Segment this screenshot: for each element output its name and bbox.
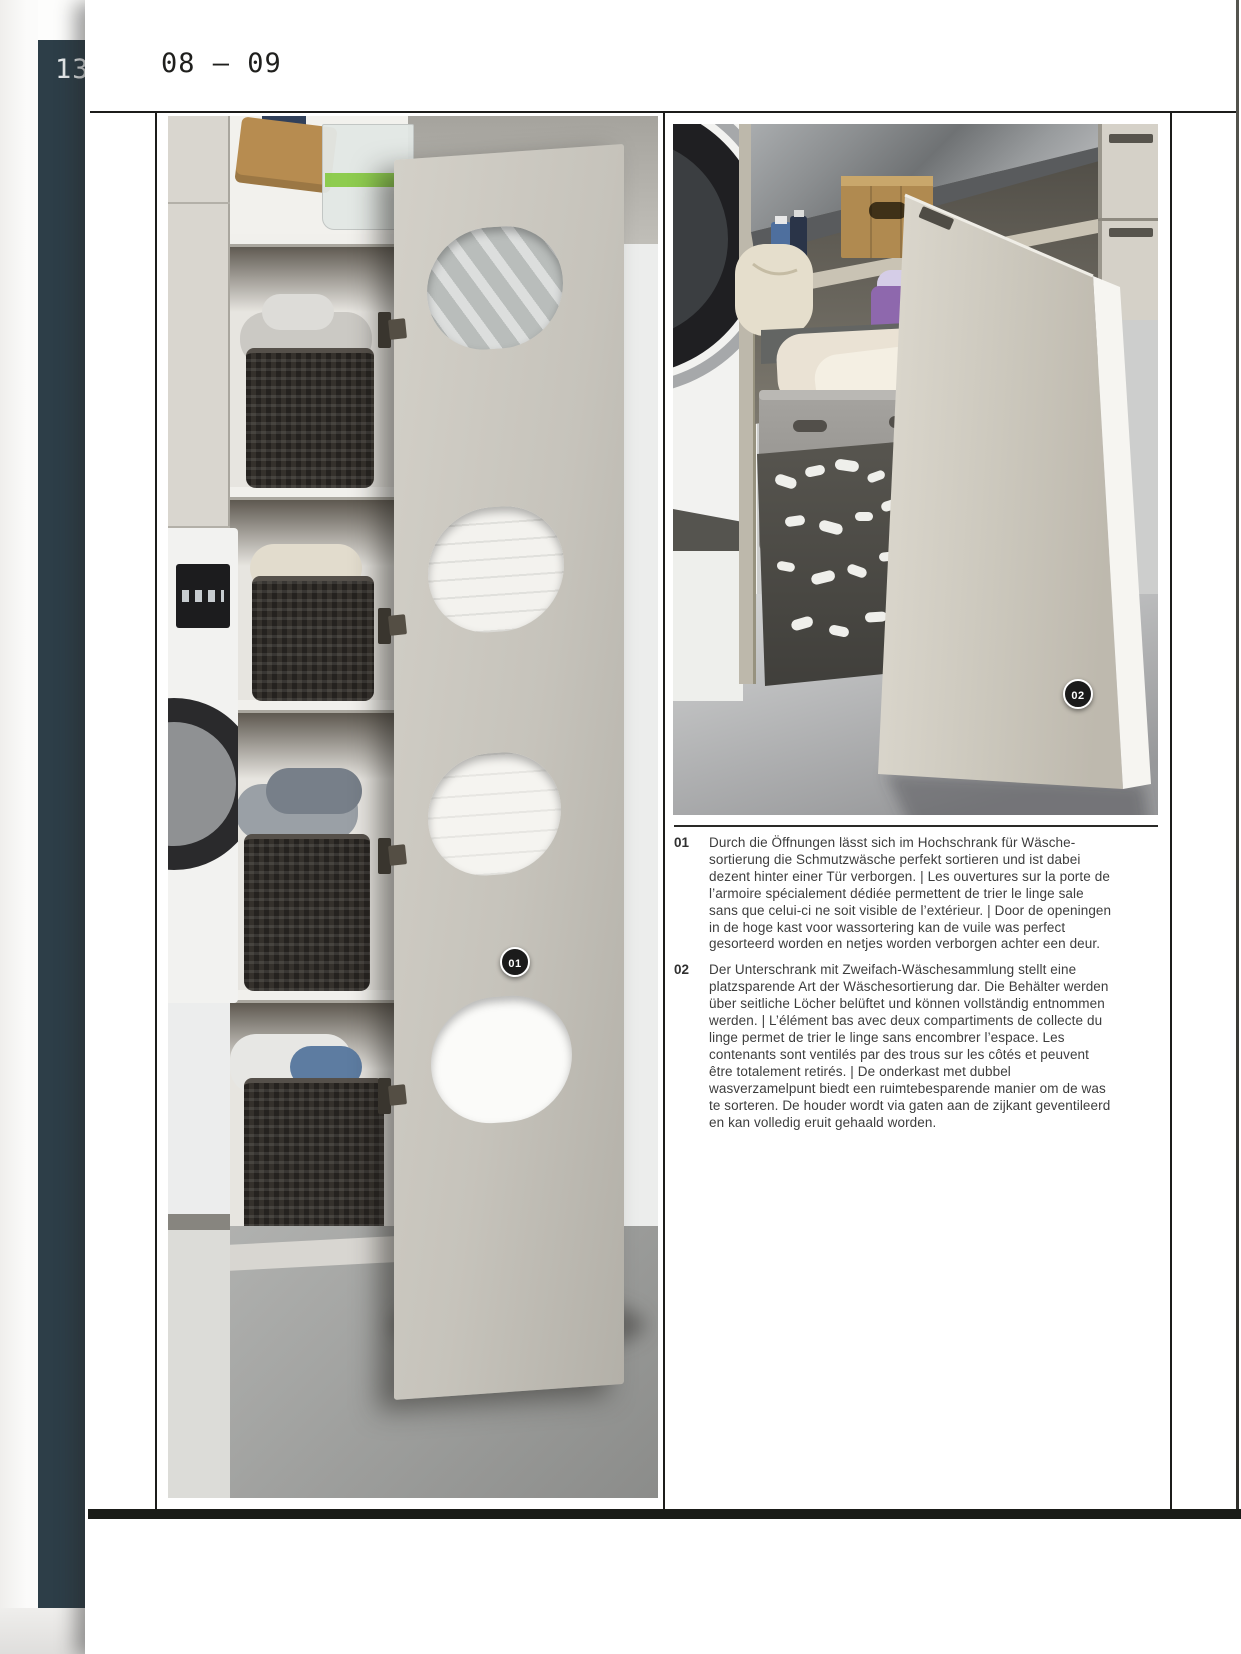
washer-control-panel xyxy=(176,564,230,628)
shelf-board xyxy=(230,990,408,1003)
figure-badge-01: 01 xyxy=(500,947,530,977)
hinge-icon xyxy=(378,312,391,348)
handle-recess xyxy=(1109,134,1153,143)
shelf-board xyxy=(230,700,408,713)
base-cabinet-front xyxy=(168,1003,230,1214)
upper-shelf-compartment xyxy=(230,116,408,234)
vent-panel xyxy=(757,442,904,686)
laundry-basket xyxy=(244,1078,384,1236)
plinth xyxy=(168,1214,230,1230)
footer-bar xyxy=(88,1509,1241,1519)
base-panel xyxy=(168,1230,230,1498)
laundry-basket xyxy=(244,834,370,991)
caption-divider-rule xyxy=(674,825,1158,827)
frame-line-left xyxy=(155,111,157,1509)
left-margin-strip xyxy=(0,0,38,1654)
bin-handle-slot xyxy=(793,420,827,432)
photo-tall-cabinet: 01 xyxy=(168,116,658,1498)
washer-display xyxy=(182,590,224,602)
caption-text: Durch die Öffnungen lässt sich im Hochsc… xyxy=(709,835,1113,953)
pullout-door-front xyxy=(878,195,1151,789)
shelf-board xyxy=(230,234,408,247)
caption-text: Der Unterschrank mit Zweifach-Wäschesamm… xyxy=(709,962,1113,1131)
door-cutout xyxy=(428,502,564,637)
adjacent-page-number: 13 xyxy=(55,54,85,85)
column-divider xyxy=(663,111,665,1509)
door-seam xyxy=(168,202,230,204)
caption-block: 01 Durch die Öffnungen lässt sich im Hoc… xyxy=(674,835,1158,1131)
door-cutout xyxy=(428,748,561,879)
vent-hole xyxy=(865,611,888,623)
laundry-basket xyxy=(246,348,374,488)
laundry-pile xyxy=(262,294,334,330)
caption-item: 01 Durch die Öffnungen lässt sich im Hoc… xyxy=(674,835,1158,953)
hinge-icon xyxy=(378,838,391,874)
page-edge xyxy=(1236,0,1239,1518)
catalog-spread: 13 08 — 09 xyxy=(0,0,1241,1654)
cabinet-door xyxy=(394,144,624,1400)
hinge-icon xyxy=(378,1078,391,1114)
door-cutout xyxy=(427,222,563,354)
hinge-icon xyxy=(378,608,391,644)
caption-number: 02 xyxy=(674,962,709,1131)
laundry-basket xyxy=(252,576,374,701)
handle-recess xyxy=(1109,228,1153,237)
photo-pullout-unit: 02 xyxy=(673,124,1158,815)
laundry-bag xyxy=(735,244,813,336)
laundry-pile xyxy=(266,768,362,814)
vent-hole xyxy=(855,512,873,521)
washing-machine xyxy=(168,528,238,1003)
adjacent-page-band: 13 xyxy=(38,40,85,1610)
door-cutout xyxy=(431,992,572,1128)
figure-badge-02: 02 xyxy=(1063,679,1093,709)
page-spread-label: 08 — 09 xyxy=(161,48,282,79)
bottom-left-corner xyxy=(0,1608,85,1654)
caption-item: 02 Der Unterschrank mit Zweifach-Wäsches… xyxy=(674,962,1158,1131)
page: 08 — 09 xyxy=(85,0,1241,1654)
caption-number: 01 xyxy=(674,835,709,953)
frame-line-right xyxy=(1170,111,1172,1509)
pullout-scene xyxy=(673,124,1158,815)
shelf-board xyxy=(230,487,408,500)
washer-porthole xyxy=(168,698,238,870)
